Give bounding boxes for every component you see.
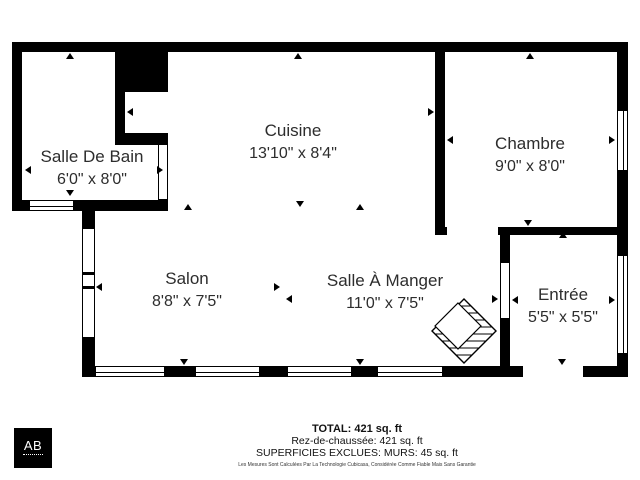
room-dimensions: 11'0" x 7'5" [327, 292, 443, 315]
dimension-arrow [286, 295, 292, 303]
wall-bottom-seg5 [583, 366, 628, 377]
bathroom-window [29, 200, 74, 211]
dimension-arrow [609, 136, 615, 144]
wall-bottom-seg4 [443, 366, 523, 377]
bottom-window-3 [287, 366, 352, 377]
floor-area-text: Rez-de-chaussée: 421 sq. ft [157, 435, 557, 447]
dimension-arrow [127, 108, 133, 116]
room-label-chambre: Chambre 9'0" x 8'0" [495, 133, 565, 178]
wall-kitchen-bedroom [435, 52, 445, 235]
brand-logo-subline [23, 454, 43, 457]
dimension-arrow [524, 220, 532, 226]
room-label-cuisine: Cuisine 13'10" x 8'4" [249, 120, 337, 165]
wall-bathroom-right-lower [158, 198, 168, 211]
floor-plan: Salle De Bain 6'0" x 8'0" Cuisine 13'10"… [0, 0, 640, 480]
dimension-arrow [184, 204, 192, 210]
room-dimensions: 13'10" x 8'4" [249, 142, 337, 165]
wall-bottom-seg1 [165, 366, 195, 377]
dimension-arrow [512, 296, 518, 304]
total-area-text: TOTAL: 421 sq. ft [157, 423, 557, 435]
dimension-arrow [180, 359, 188, 365]
brand-logo: AB [14, 428, 52, 468]
room-label-salle-de-bain: Salle De Bain 6'0" x 8'0" [40, 146, 143, 191]
salon-left-window-mullion-2 [82, 286, 95, 289]
dimension-arrow [428, 108, 434, 116]
dimension-arrow [558, 359, 566, 365]
wall-bedroom-foot [435, 227, 447, 235]
room-label-salle-a-manger: Salle À Manger 11'0" x 7'5" [327, 270, 443, 315]
room-name: Salle À Manger [327, 270, 443, 292]
wall-bottom-seg2 [260, 366, 287, 377]
wall-lower-left-top [82, 211, 95, 228]
room-dimensions: 6'0" x 8'0" [40, 168, 143, 191]
room-label-entree: Entrée 5'5" x 5'5" [528, 284, 598, 329]
entry-door-opening [500, 263, 510, 318]
bottom-window-1 [95, 366, 165, 377]
dimension-arrow [356, 204, 364, 210]
room-name: Chambre [495, 133, 565, 155]
dimension-arrow [609, 296, 615, 304]
room-dimensions: 5'5" x 5'5" [528, 306, 598, 329]
dimension-arrow [25, 166, 31, 174]
room-name: Entrée [528, 284, 598, 306]
wall-entry-left-top [500, 235, 510, 263]
dimension-arrow [294, 53, 302, 59]
dimension-arrow [356, 359, 364, 365]
wall-lower-left-bottom [82, 338, 95, 377]
bottom-window-4 [377, 366, 443, 377]
wall-utility-block [115, 52, 168, 92]
dimension-arrow [66, 53, 74, 59]
bottom-window-2 [195, 366, 260, 377]
dimension-arrow [157, 166, 163, 174]
dimension-arrow [296, 201, 304, 207]
entry-window [617, 255, 628, 354]
dimension-arrow [96, 283, 102, 291]
bedroom-window [617, 110, 628, 171]
room-label-salon: Salon 8'8" x 7'5" [152, 268, 222, 313]
room-name: Cuisine [249, 120, 337, 142]
room-dimensions: 9'0" x 8'0" [495, 155, 565, 178]
wall-top [12, 42, 628, 52]
salon-left-window [82, 228, 95, 338]
disclaimer-text: Les Mesures Sont Calculées Par La Techno… [157, 461, 557, 469]
room-dimensions: 8'8" x 7'5" [152, 290, 222, 313]
dimension-arrow [447, 136, 453, 144]
excluded-area-text: SUPERFICIES EXCLUES: MURS: 45 sq. ft [157, 447, 557, 459]
dimension-arrow [274, 283, 280, 291]
wall-niche-horizontal [115, 133, 168, 145]
salon-left-window-mullion-1 [82, 272, 95, 275]
dimension-arrow [559, 232, 567, 238]
wall-left-upper [12, 42, 22, 211]
brand-logo-text: AB [24, 439, 42, 452]
dimension-arrow [526, 53, 534, 59]
summary-block: TOTAL: 421 sq. ft Rez-de-chaussée: 421 s… [157, 423, 557, 469]
room-name: Salon [152, 268, 222, 290]
wall-bottom-seg3 [352, 366, 377, 377]
room-name: Salle De Bain [40, 146, 143, 168]
